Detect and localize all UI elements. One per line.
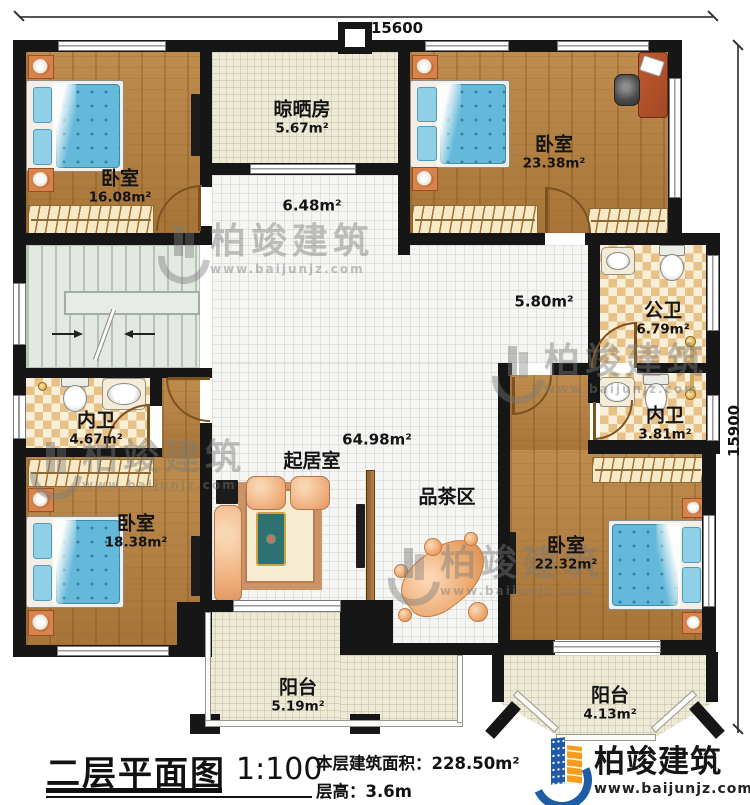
bed-sheet [53, 83, 76, 169]
pillow [33, 523, 52, 559]
nightstand [28, 55, 54, 79]
balcony-railing [457, 655, 463, 723]
sink-basin [606, 252, 630, 270]
room-label-balcony-left: 阳台5.19m² [271, 677, 324, 714]
stairs-direction-arrow [74, 330, 83, 338]
nightstand [412, 55, 438, 79]
brand-logo-icon [534, 736, 588, 800]
balcony-pier [706, 652, 718, 702]
balcony-pier [177, 602, 208, 655]
sink-basin [107, 383, 141, 405]
balcony-pier [492, 652, 504, 702]
window [707, 395, 719, 441]
brand-logo: 柏竣建筑 www.baijunjz.com [534, 736, 750, 800]
room-label-tea-area: 品茶区 [418, 487, 475, 509]
area-label-upper-hall: 6.48m² [282, 197, 341, 214]
watermark: 柏竣建筑 www.baijunjz.com [30, 438, 246, 494]
balcony-chamfer-wall [689, 701, 725, 739]
wall [398, 52, 410, 255]
wall [13, 40, 26, 657]
brand-name: 柏竣建筑 [594, 736, 750, 781]
tea-pebble [468, 602, 488, 622]
watermark-logo-icon [30, 438, 74, 494]
window [58, 41, 166, 51]
stairs-landing [64, 291, 200, 315]
nightstand [412, 167, 438, 191]
floor-drain [38, 382, 47, 391]
wall [150, 378, 162, 406]
watermark-url: www.baijunjz.com [544, 382, 708, 396]
pillow [33, 129, 52, 165]
window [13, 395, 26, 439]
wall [200, 52, 212, 187]
wall [585, 233, 706, 245]
window [669, 78, 681, 198]
pillow [417, 126, 437, 161]
tv [191, 536, 200, 596]
room-label-public-bath: 公卫6.79m² [636, 300, 689, 337]
pillow [682, 527, 702, 562]
tea-pebble [398, 608, 412, 622]
floor-plan: 15600 15900 [0, 0, 750, 805]
dimension-label-right: 15900 [725, 403, 743, 459]
window [703, 515, 715, 607]
sliding-door [553, 641, 661, 653]
area-label-living: 64.98m² [342, 431, 412, 448]
coffee-table [256, 512, 286, 566]
watermark-logo-icon [158, 222, 202, 278]
wardrobe [412, 205, 538, 235]
watermark: 柏竣建筑 www.baijunjz.com [158, 222, 374, 278]
pillow [417, 87, 437, 122]
room-label-bedroom-tr: 卧室23.38m² [523, 134, 586, 171]
tv [191, 94, 200, 156]
bed-sheet [437, 83, 461, 165]
window [707, 255, 719, 331]
sink-counter [601, 247, 635, 275]
nightstand [28, 610, 54, 636]
door-leaf [168, 377, 210, 380]
window [425, 41, 509, 51]
bed-sheet [657, 523, 681, 607]
pillow [682, 567, 702, 602]
door-leaf [593, 402, 596, 440]
brand-url: www.baijunjz.com [594, 781, 750, 797]
toilet [58, 376, 92, 412]
dimension-line-right [737, 45, 739, 733]
balcony-railing [205, 612, 211, 722]
room-label-ensuite-right: 内卫3.81m² [638, 405, 691, 442]
stairs-direction-arrow [124, 330, 133, 338]
watermark-name: 柏竣建筑 [544, 344, 708, 380]
floor-area-text: 本层建筑面积：228.50m² [316, 750, 520, 774]
door-leaf [545, 189, 548, 233]
window [13, 283, 26, 345]
bed [608, 520, 708, 610]
area-label-corridor: 5.80m² [514, 293, 573, 310]
watermark-url: www.baijunjz.com [82, 478, 246, 492]
toilet [656, 245, 688, 281]
watermark-name: 柏竣建筑 [210, 224, 374, 260]
room-label-bedroom-tl: 卧室16.08m² [89, 168, 152, 205]
wardrobe [28, 205, 154, 235]
stairs-arrow-line [133, 333, 155, 335]
dimension-line-top [19, 16, 713, 18]
tv [356, 504, 365, 568]
room-label-balcony-right: 阳台4.13m² [583, 685, 636, 722]
watermark-logo-icon [388, 544, 432, 600]
bed-sheet [53, 519, 76, 605]
sofa [214, 505, 242, 603]
title-underline-thin [46, 796, 312, 798]
desk-chair [614, 74, 640, 106]
nightstand [28, 168, 54, 192]
pillow [33, 565, 52, 601]
stairs-arrow-line [52, 333, 74, 335]
room-label-bedroom-bl: 卧室18.38m² [105, 513, 168, 550]
dimension-label-top: 15600 [352, 19, 442, 37]
room-label-bedroom-br: 卧室22.32m² [535, 535, 598, 572]
room-label-drying: 晾晒房5.67m² [273, 99, 330, 136]
watermark-logo-icon [492, 342, 536, 398]
armchair [246, 476, 286, 510]
wall [498, 375, 510, 655]
window [57, 646, 169, 656]
title-underline [46, 788, 222, 793]
wall [498, 640, 555, 655]
balcony-chamfer-wall [485, 701, 521, 739]
pillow [33, 87, 52, 123]
watermark-url: www.baijunjz.com [210, 262, 374, 276]
balcony-railing [205, 720, 463, 727]
sliding-door [233, 600, 341, 612]
drawing-scale: 1:100 [236, 752, 322, 787]
watermark-url: www.baijunjz.com [440, 584, 604, 598]
wall [398, 233, 545, 245]
wardrobe [588, 208, 668, 234]
room-label-living: 起居室 [283, 451, 340, 473]
bed [410, 80, 510, 168]
wall [383, 643, 503, 655]
wardrobe [592, 457, 704, 483]
watermark: 柏竣建筑 www.baijunjz.com [492, 342, 708, 398]
room-label-ensuite-left: 内卫4.67m² [69, 410, 122, 447]
bed [26, 80, 124, 172]
window [250, 164, 356, 174]
floor-height-text: 层高：3.6m [316, 778, 412, 802]
window [557, 41, 649, 51]
armchair [290, 476, 330, 510]
